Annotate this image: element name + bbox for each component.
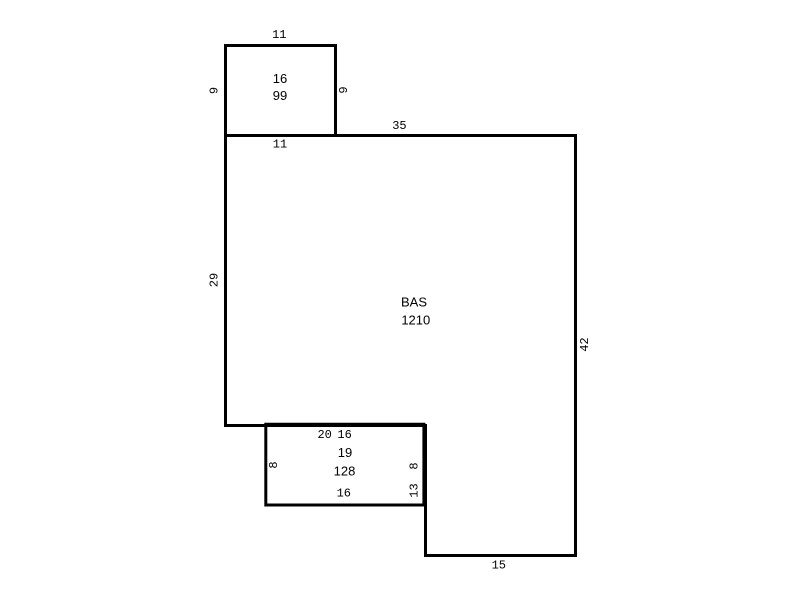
svg-text:11: 11 (273, 138, 287, 152)
svg-text:35: 35 (392, 119, 406, 133)
svg-text:13: 13 (408, 483, 422, 497)
svg-text:8: 8 (267, 461, 281, 468)
svg-text:15: 15 (492, 559, 506, 573)
svg-text:9: 9 (337, 86, 351, 93)
svg-text:BAS: BAS (401, 295, 427, 310)
svg-text:11: 11 (272, 28, 286, 42)
svg-text:16: 16 (337, 428, 351, 442)
svg-text:42: 42 (578, 337, 592, 351)
svg-text:1210: 1210 (401, 312, 430, 327)
svg-text:20: 20 (317, 428, 331, 442)
svg-text:29: 29 (208, 273, 222, 287)
svg-text:128: 128 (334, 464, 356, 479)
svg-text:19: 19 (338, 445, 352, 460)
svg-text:99: 99 (273, 88, 287, 103)
svg-text:16: 16 (273, 71, 287, 86)
svg-text:9: 9 (208, 87, 222, 94)
svg-text:16: 16 (337, 487, 351, 501)
svg-text:8: 8 (408, 462, 422, 469)
